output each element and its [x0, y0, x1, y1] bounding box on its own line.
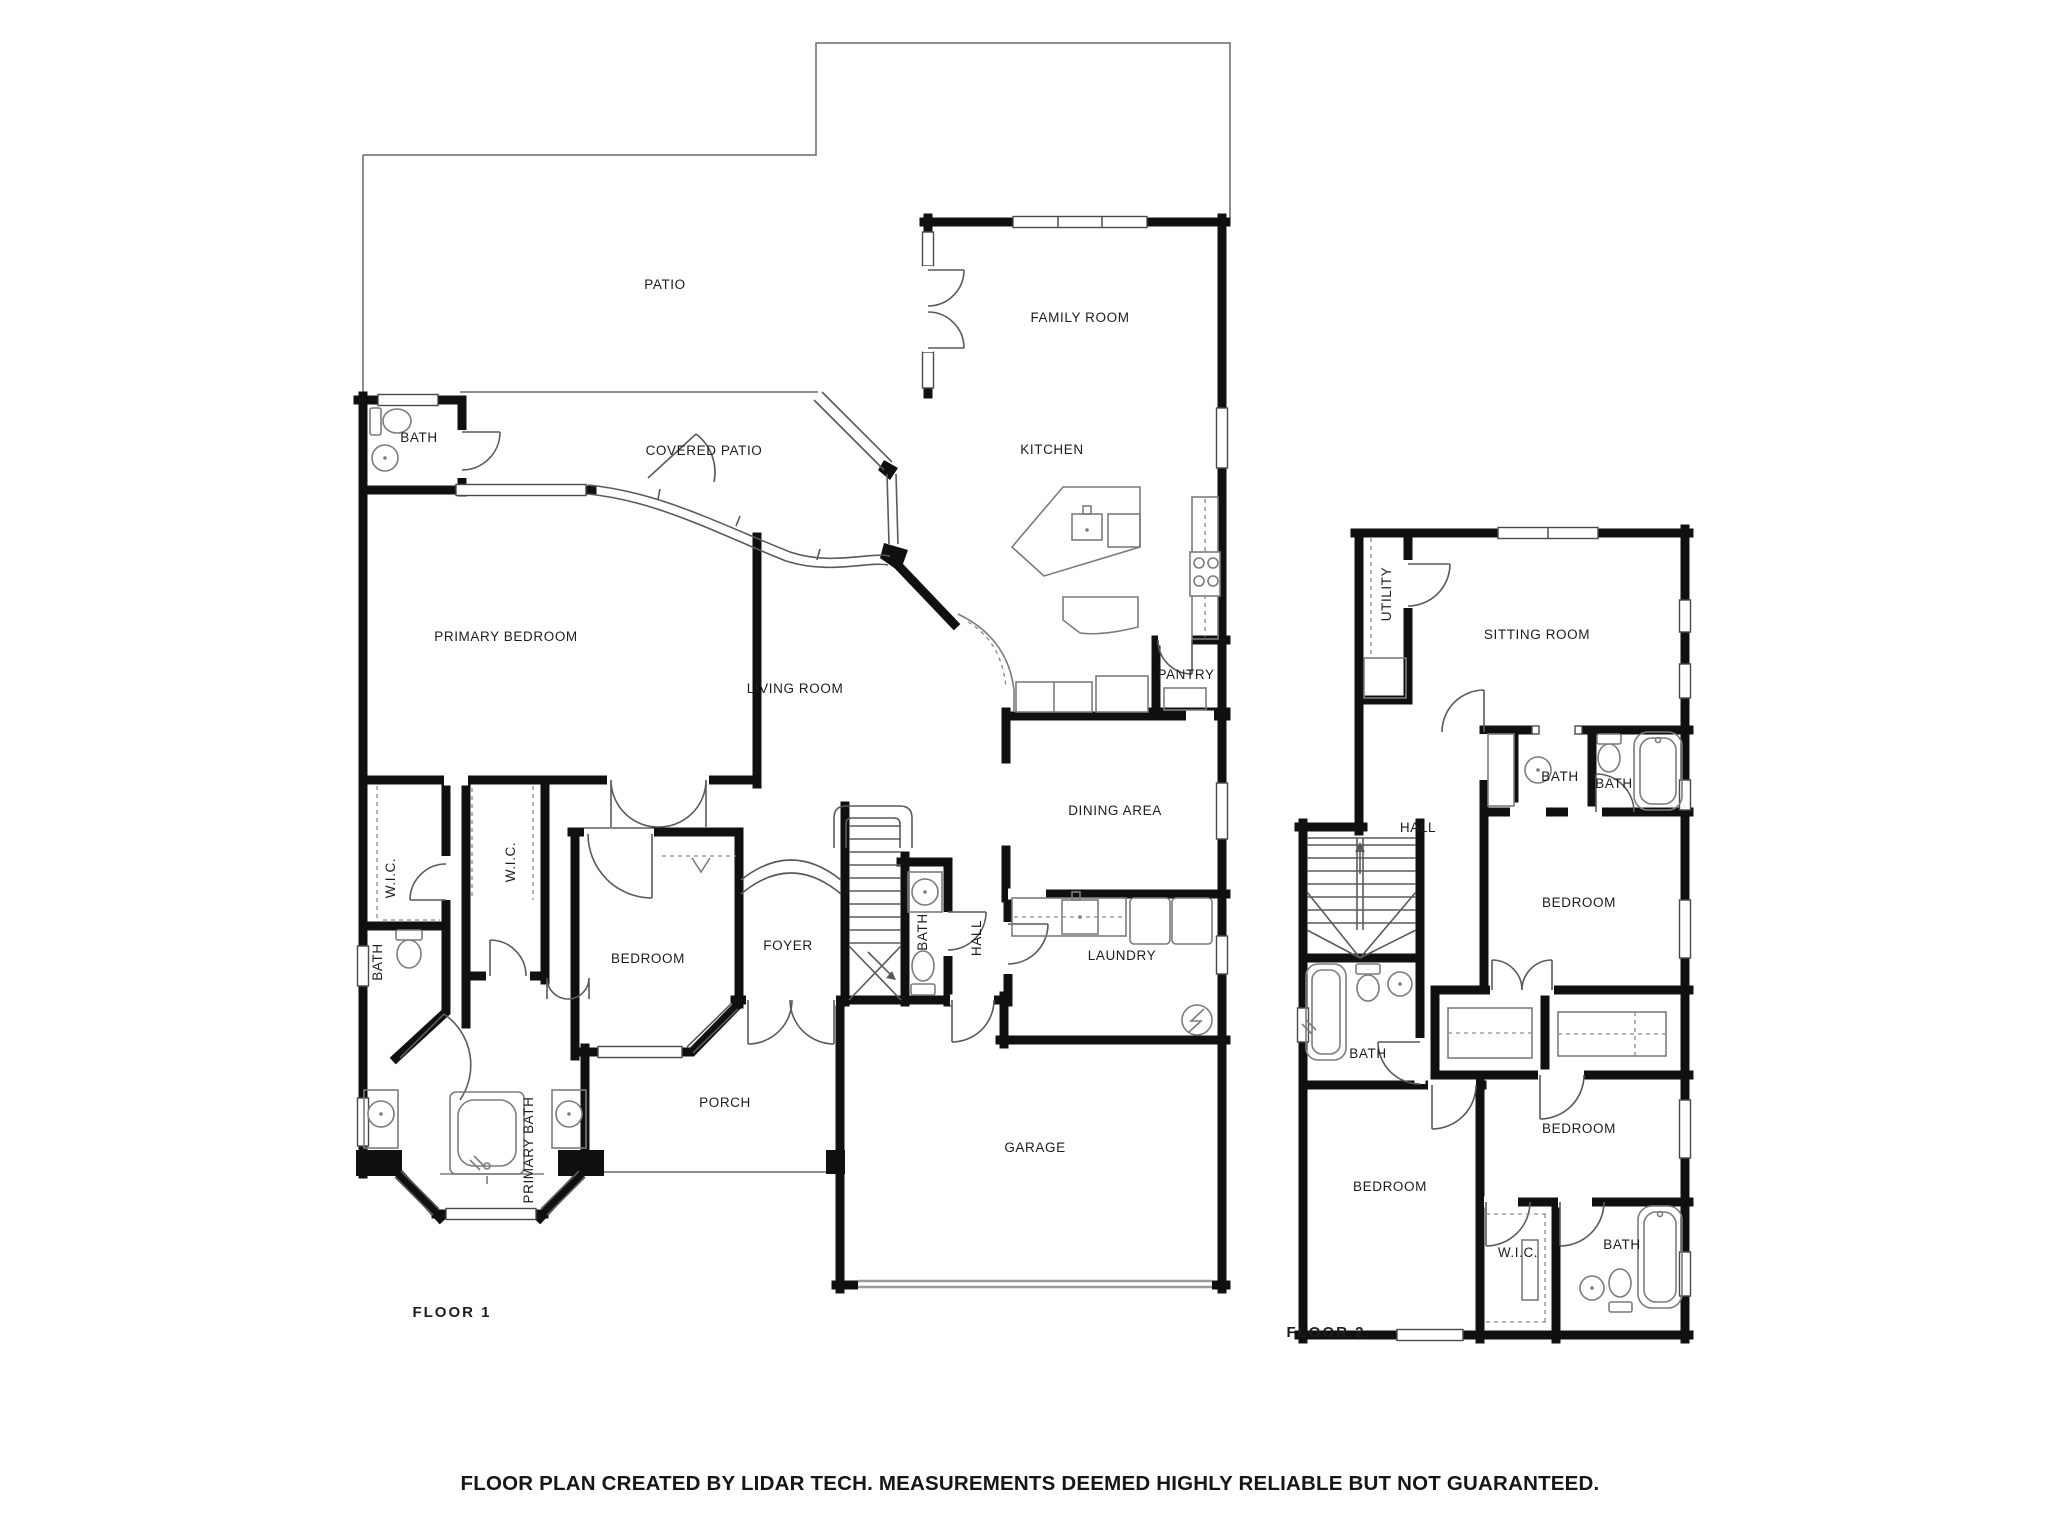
room-label-family-room: FAMILY ROOM [1030, 310, 1129, 325]
room-label-bath-stairs: BATH [915, 913, 930, 950]
water-heater-icon [1364, 658, 1406, 698]
foyer-arch [741, 860, 841, 894]
primary-bath-corner-block [558, 1150, 604, 1176]
room-label-primary-bath: PRIMARY BATH [521, 1097, 536, 1204]
room-label-bedroom-1: BEDROOM [1542, 895, 1616, 910]
room-label-garage: GARAGE [1004, 1140, 1065, 1155]
bath-fixtures [1580, 1206, 1682, 1312]
room-label-living-room: LIVING ROOM [747, 681, 844, 696]
room-label-bath-3: BATH [1349, 1046, 1386, 1061]
floor-plan-page: PATIO FAMILY ROOM BATH COVERED PATIO KIT… [0, 0, 2048, 1536]
room-label-pantry: PANTRY [1157, 667, 1214, 682]
room-label-sitting-room: SITTING ROOM [1484, 627, 1590, 642]
stove-icon [1190, 552, 1220, 596]
room-label-bedroom-2: BEDROOM [1542, 1121, 1616, 1136]
room-label-wic: W.I.C. [1498, 1245, 1538, 1260]
room-label-hall: HALL [969, 920, 984, 956]
room-label-bath-1: BATH [1541, 769, 1578, 784]
primary-bath-corner-block [356, 1150, 402, 1176]
porch-outline [581, 1150, 845, 1174]
wall-wedge [878, 460, 898, 480]
room-label-laundry: LAUNDRY [1088, 948, 1156, 963]
kitchen-island [1012, 487, 1140, 634]
floor1-plan: PATIO FAMILY ROOM BATH COVERED PATIO KIT… [356, 43, 1230, 1321]
room-label-primary-bedroom: PRIMARY BEDROOM [434, 629, 578, 644]
wic-fixtures [1486, 1214, 1550, 1322]
room-label-patio: PATIO [644, 277, 686, 292]
dryer-icon [1172, 898, 1212, 944]
floor-plan-drawing: PATIO FAMILY ROOM BATH COVERED PATIO KIT… [0, 0, 2048, 1536]
room-label-dining-area: DINING AREA [1068, 803, 1162, 818]
room-label-porch: PORCH [699, 1095, 751, 1110]
room-label-wic-1: W.I.C. [383, 858, 398, 898]
curved-window-wall [588, 392, 898, 567]
room-label-kitchen: KITCHEN [1020, 442, 1083, 457]
sink-icon [372, 445, 398, 471]
laundry-fixtures [1012, 892, 1212, 944]
floor1-walls [358, 218, 1226, 1289]
room-label-bath: BATH [400, 430, 437, 445]
bathtub-icon [1638, 1206, 1682, 1308]
room-label-bedroom: BEDROOM [611, 951, 685, 966]
room-label-covered-patio: COVERED PATIO [646, 443, 763, 458]
room-label-hall: HALL [1400, 820, 1436, 835]
floor2-title: FLOOR 2 [1286, 1324, 1365, 1341]
floor1-title: FLOOR 1 [412, 1304, 491, 1321]
room-label-bedroom-3: BEDROOM [1353, 1179, 1427, 1194]
room-label-foyer: FOYER [763, 938, 813, 953]
washer-icon [1130, 898, 1170, 944]
room-label-bath-4: BATH [1603, 1237, 1640, 1252]
room-label-wic-2: W.I.C. [503, 842, 518, 882]
floor2-plan: UTILITY SITTING ROOM BATH BATH HALL BEDR… [1286, 528, 1690, 1342]
room-label-utility: UTILITY [1379, 567, 1394, 621]
electrical-panel-icon [1182, 1005, 1212, 1035]
closet-rod [1448, 1008, 1666, 1058]
floor1-labels: PATIO FAMILY ROOM BATH COVERED PATIO KIT… [370, 277, 1215, 1321]
toilet-icon [396, 930, 422, 968]
disclaimer-caption: FLOOR PLAN CREATED BY LIDAR TECH. MEASUR… [461, 1472, 1600, 1495]
room-label-bath-left: BATH [370, 943, 385, 980]
floor2-walls [1299, 529, 1689, 1339]
bathtub-icon [1634, 732, 1682, 810]
stairs-icon [1307, 838, 1416, 958]
room-label-bath-2: BATH [1595, 776, 1632, 791]
